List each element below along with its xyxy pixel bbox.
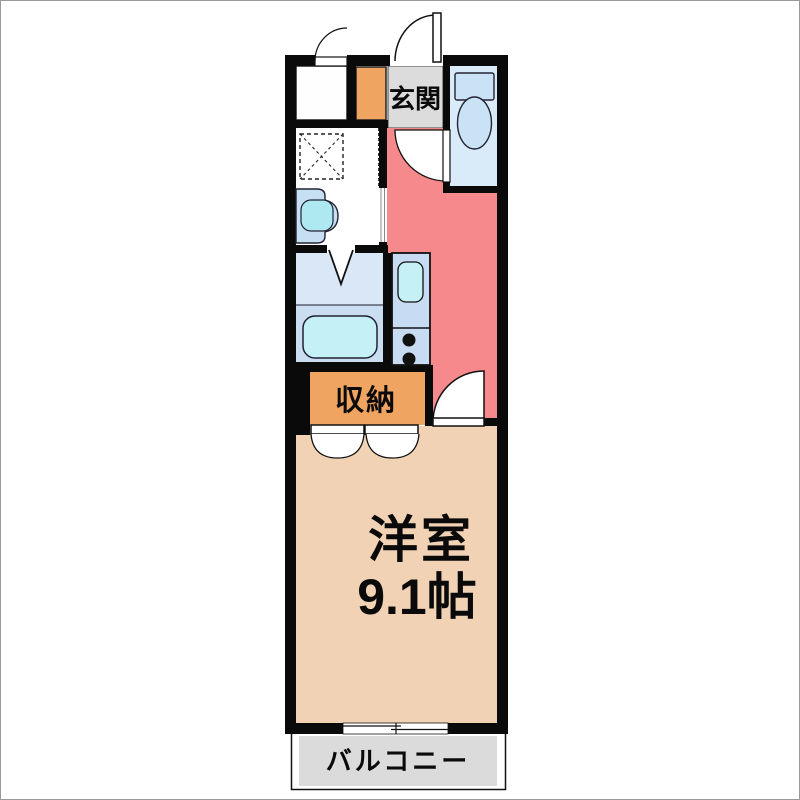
floorplan-page: { "floorplan": { "rooms": { "entrance": … bbox=[0, 0, 800, 800]
wall-segment bbox=[484, 418, 497, 426]
toilet-door-leaf bbox=[443, 130, 450, 182]
wall-segment bbox=[347, 66, 356, 120]
wall-segment bbox=[285, 55, 296, 734]
closet-label: 収納 bbox=[306, 387, 426, 416]
utility-room-floor bbox=[296, 66, 347, 120]
closet-door-leaf bbox=[365, 425, 418, 434]
closet-door-leaf bbox=[311, 425, 364, 434]
utility-door-leaf bbox=[315, 57, 347, 66]
entrance-label: 玄関 bbox=[375, 86, 455, 112]
wall-segment bbox=[425, 365, 433, 426]
entrance-door-arc bbox=[395, 15, 436, 61]
stove-burner-icon bbox=[403, 334, 416, 347]
western-room-label: 洋室 bbox=[321, 515, 521, 565]
wall-segment bbox=[383, 253, 392, 372]
toilet-tank-icon bbox=[455, 73, 494, 100]
hallway-floor-middle bbox=[383, 193, 497, 253]
balcony-label: バルコニー bbox=[298, 748, 498, 774]
entrance-door-leaf bbox=[433, 13, 441, 62]
western-room-size-label: 9.1帖 bbox=[317, 572, 517, 622]
bathtub-icon bbox=[303, 316, 377, 358]
wall-segment bbox=[285, 723, 343, 734]
wall-segment bbox=[448, 723, 508, 734]
washbasin-bowl-icon bbox=[301, 200, 333, 231]
room-door-leaf bbox=[433, 418, 484, 426]
stove-burner-icon bbox=[403, 353, 416, 366]
wall-segment bbox=[347, 55, 390, 66]
kitchen-sink-icon bbox=[398, 262, 423, 302]
wall-segment bbox=[379, 128, 387, 188]
toilet-bowl-icon bbox=[458, 97, 492, 149]
wall-segment bbox=[497, 55, 508, 734]
wall-segment bbox=[296, 120, 388, 128]
washroom-sliding-door bbox=[379, 188, 387, 242]
wall-segment bbox=[443, 186, 497, 193]
